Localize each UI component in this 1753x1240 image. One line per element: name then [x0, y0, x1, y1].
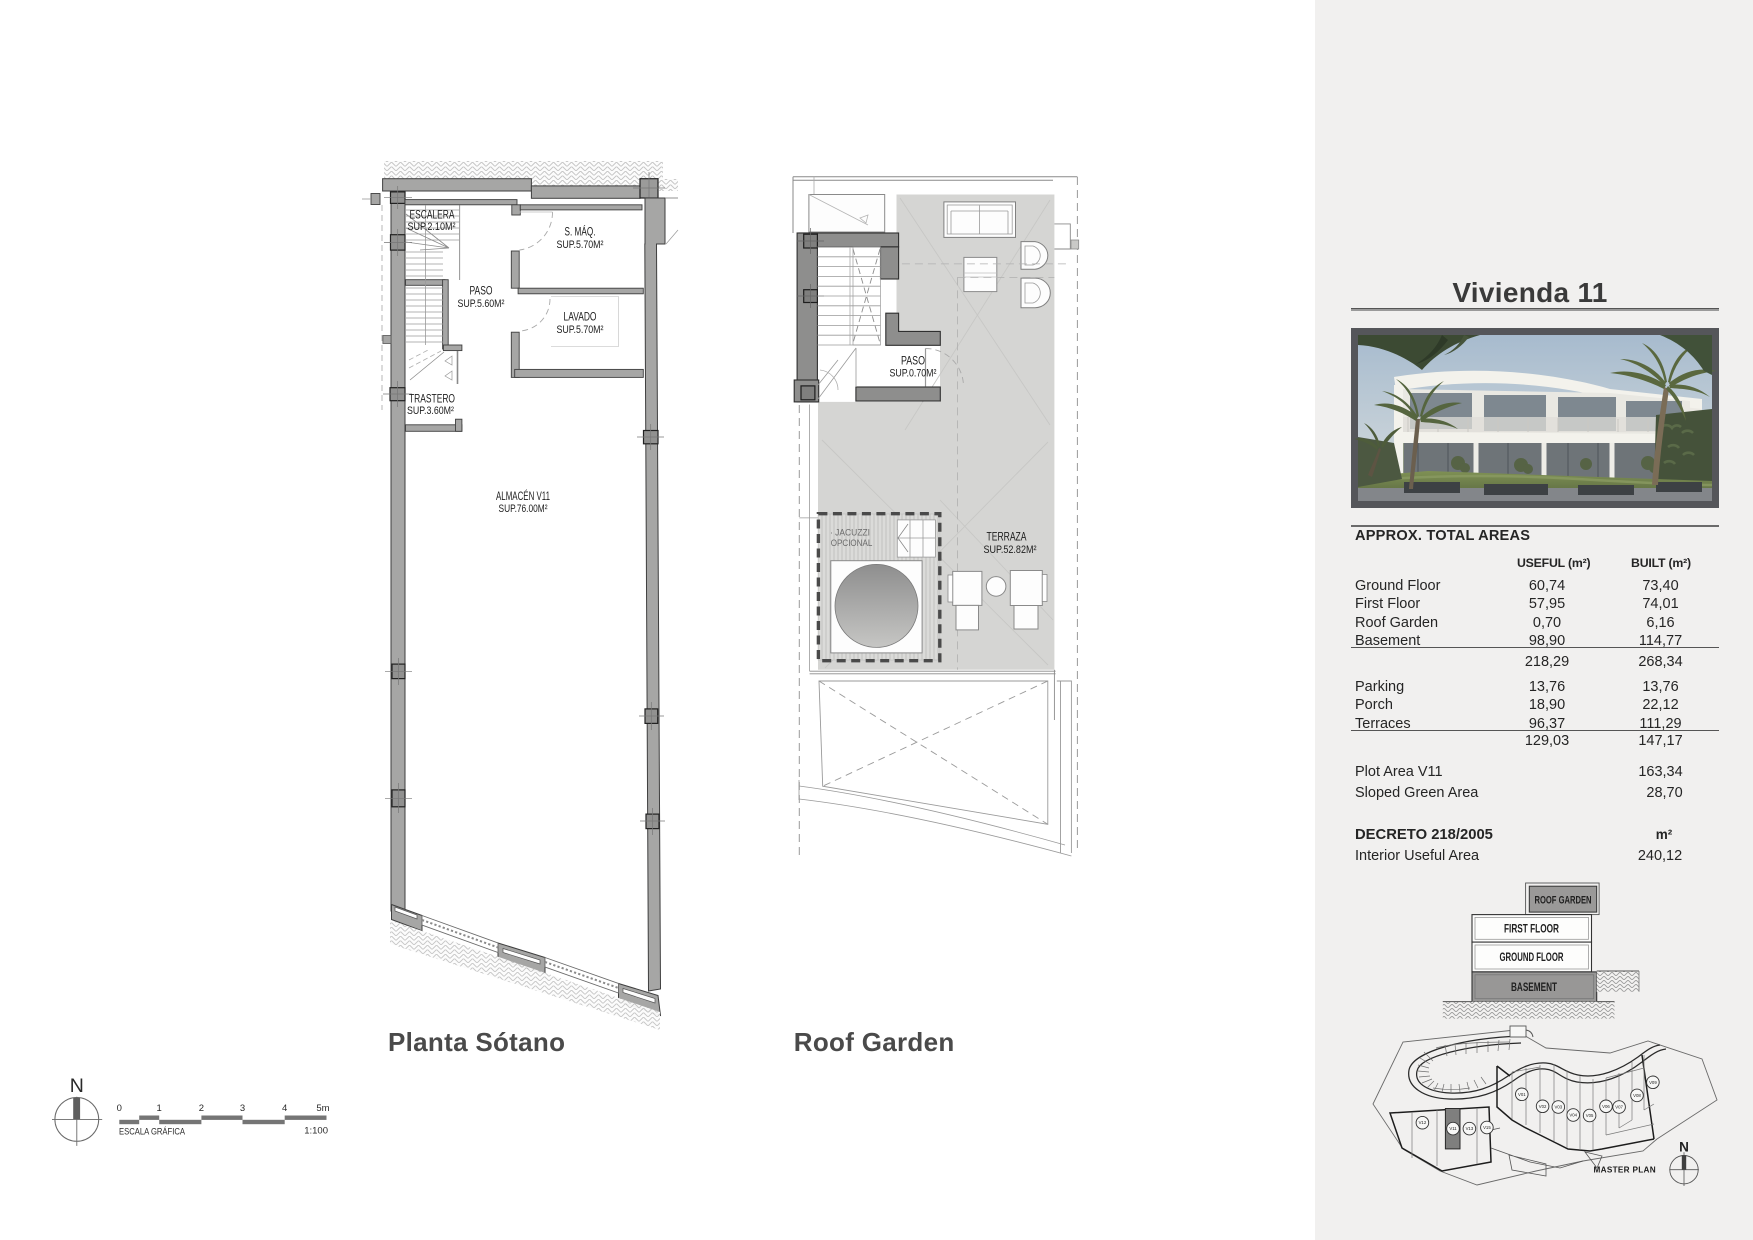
svg-text:V02: V02: [1539, 1104, 1547, 1109]
svg-text:N: N: [1679, 1140, 1689, 1155]
svg-text:V06: V06: [1602, 1104, 1610, 1109]
svg-text:V13: V13: [1466, 1126, 1474, 1131]
svg-text:V15: V15: [1483, 1125, 1491, 1130]
svg-text:V12: V12: [1419, 1120, 1427, 1125]
svg-text:V11: V11: [1449, 1126, 1457, 1131]
svg-text:V05: V05: [1586, 1113, 1594, 1118]
svg-text:MASTER PLAN: MASTER PLAN: [1594, 1166, 1656, 1175]
svg-text:GROUND FLOOR: GROUND FLOOR: [1500, 952, 1564, 964]
svg-text:BASEMENT: BASEMENT: [1511, 982, 1557, 994]
svg-text:V04: V04: [1569, 1113, 1577, 1118]
svg-text:FIRST FLOOR: FIRST FLOOR: [1504, 924, 1559, 936]
svg-text:ROOF GARDEN: ROOF GARDEN: [1535, 895, 1592, 907]
svg-text:V07: V07: [1615, 1105, 1623, 1110]
svg-text:V08: V08: [1633, 1093, 1641, 1098]
svg-text:V09: V09: [1649, 1080, 1657, 1085]
svg-text:V03: V03: [1554, 1105, 1562, 1110]
svg-text:V01: V01: [1518, 1092, 1526, 1097]
